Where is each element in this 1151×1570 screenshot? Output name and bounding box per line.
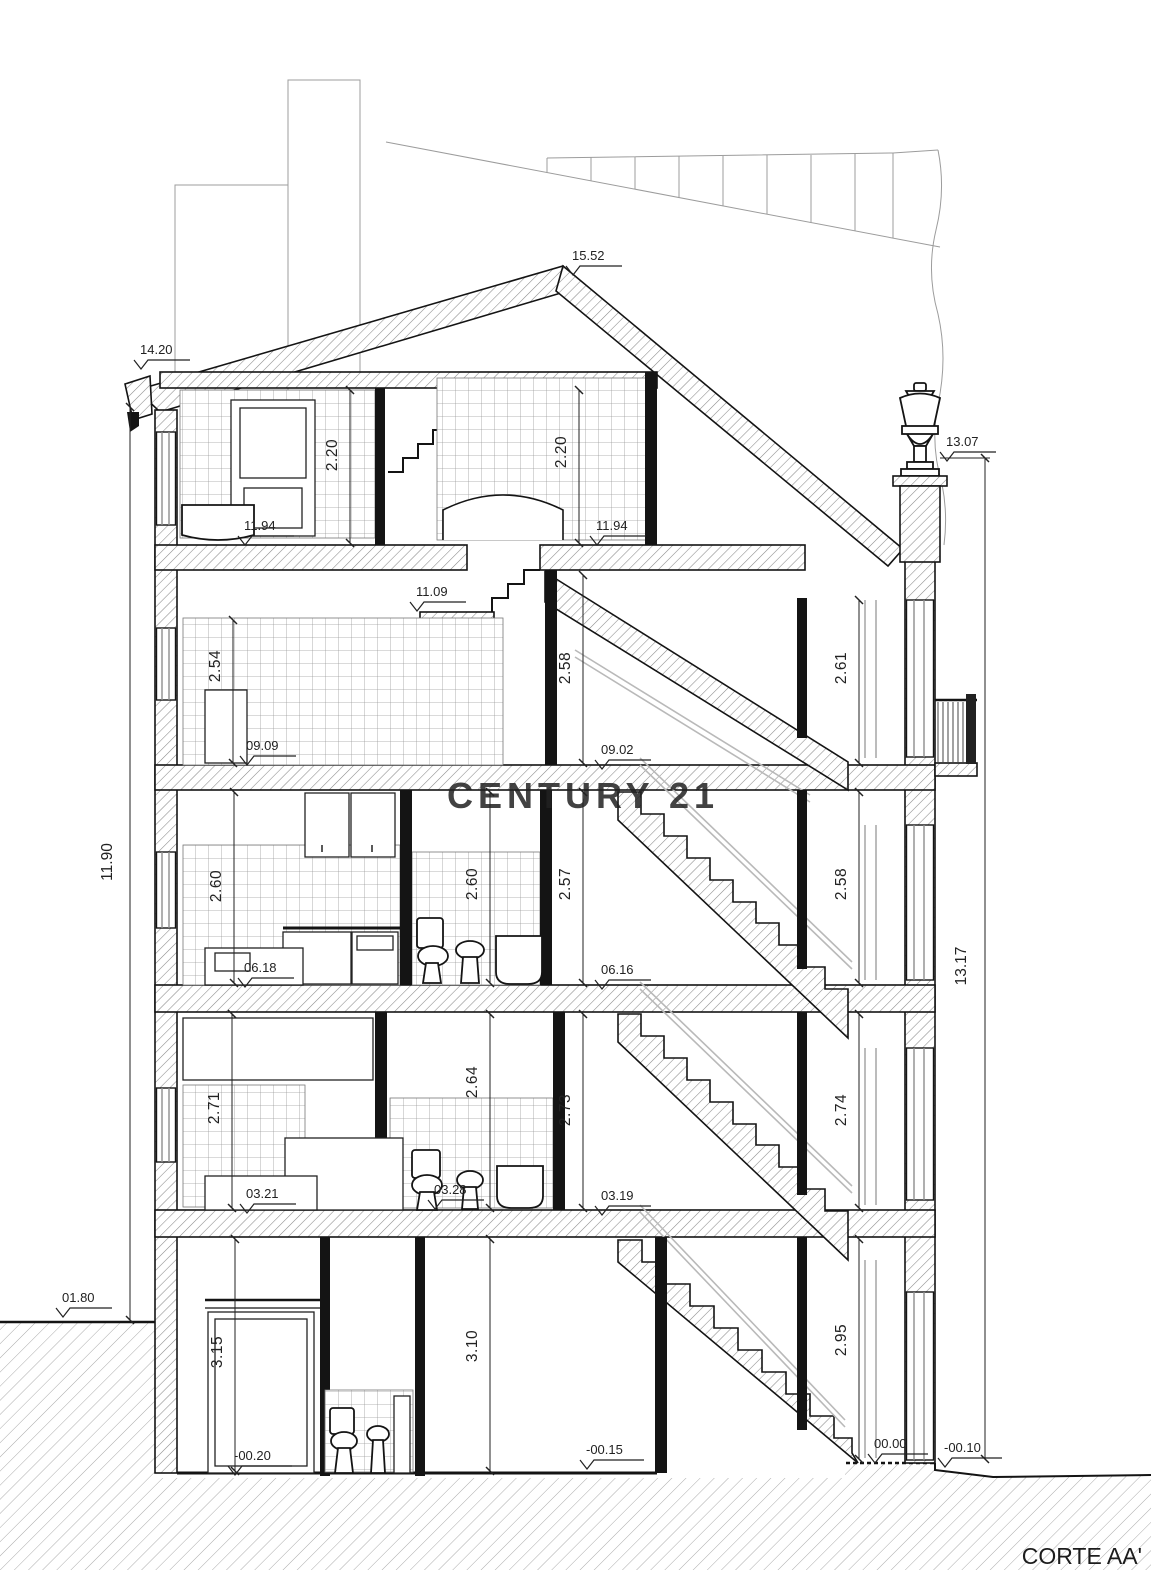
room-height: 2.71	[206, 1092, 223, 1124]
room-height: 2.73	[557, 1094, 574, 1126]
century21-watermark: CENTURY 21	[447, 775, 719, 816]
grade-line-right	[935, 1463, 1151, 1477]
room-height: 2.58	[833, 868, 850, 900]
stair-wall-f4	[797, 1012, 807, 1195]
floor4-bathtub	[497, 1166, 543, 1208]
section-drawing-page: 15.52 14.20 13.07 11.94 11.94 11.09 09.0…	[0, 0, 1151, 1570]
ground-partition-c	[655, 1237, 667, 1473]
level-label: 01.80	[62, 1290, 95, 1305]
level-label: 06.18	[244, 960, 277, 975]
stair-steps-to-attic-slab	[492, 570, 540, 612]
ground-bath-door	[394, 1396, 410, 1473]
attic-arched-niche	[443, 495, 563, 540]
urn-finial	[900, 383, 940, 476]
drawing-title: CORTE AA'	[1022, 1543, 1142, 1569]
background-roof-top	[547, 150, 938, 158]
level-label: 03.28	[434, 1182, 467, 1197]
overall-height-left: 11.90	[99, 843, 116, 881]
level-label: 09.09	[246, 738, 279, 753]
balcony-railing	[935, 694, 977, 776]
room-height: 2.57	[557, 868, 574, 900]
level-label: 06.16	[601, 962, 634, 977]
room-height: 2.20	[324, 439, 341, 471]
level-label: 11.94	[596, 518, 628, 533]
stair-flight-03-ground	[618, 1240, 858, 1463]
floor3-partition-a	[400, 790, 412, 985]
room-height: 3.10	[464, 1330, 481, 1362]
section-drawing-svg: 15.52 14.20 13.07 11.94 11.94 11.09 09.0…	[0, 0, 1151, 1570]
level-label: -00.15	[586, 1442, 623, 1457]
level-label: 15.52	[572, 248, 605, 263]
background-roof-slope	[386, 142, 940, 247]
railing-post	[966, 694, 976, 764]
room-height: 2.95	[833, 1324, 850, 1356]
attic-partition	[375, 388, 385, 545]
level-label: 03.21	[246, 1186, 279, 1201]
room-height: 2.60	[208, 870, 225, 902]
level-label: 09.02	[601, 742, 634, 757]
room-height: 2.58	[557, 652, 574, 684]
room-height: 2.60	[464, 868, 481, 900]
pillar	[900, 486, 940, 562]
stair-wall-ground	[797, 1237, 807, 1430]
room-height: 2.74	[833, 1094, 850, 1126]
pillar-cap	[893, 476, 947, 486]
attic-room-right-wall	[645, 372, 657, 545]
level-label: 03.19	[601, 1188, 634, 1203]
ground-partition-b	[415, 1237, 425, 1476]
attic-floor-slab-left	[155, 545, 467, 570]
room-height: 2.54	[207, 650, 224, 682]
room-height: 2.20	[553, 436, 570, 468]
level-label: -00.10	[944, 1440, 981, 1455]
level-label: -00.20	[234, 1448, 271, 1463]
gutter-left	[127, 412, 139, 432]
attic-floor-slab-right	[540, 545, 805, 570]
overall-height-right: 13.17	[953, 947, 970, 986]
right-bay-frames	[865, 600, 876, 1458]
floor2-cabinet	[205, 690, 247, 763]
room-height: 2.64	[464, 1066, 481, 1098]
floor3-bathtub	[496, 936, 542, 984]
room-height: 2.61	[833, 652, 850, 684]
stair-wall-f2	[797, 598, 807, 738]
background-roof-battens	[547, 153, 893, 238]
stair-wall-f3	[797, 790, 807, 969]
level-label: 00.00	[874, 1436, 907, 1451]
level-label: 14.20	[140, 342, 173, 357]
floor2-partition	[545, 570, 557, 765]
level-label: 13.07	[946, 434, 979, 449]
level-label: 11.94	[244, 518, 276, 533]
room-height: 3.15	[209, 1336, 226, 1368]
level-label: 11.09	[416, 584, 448, 599]
